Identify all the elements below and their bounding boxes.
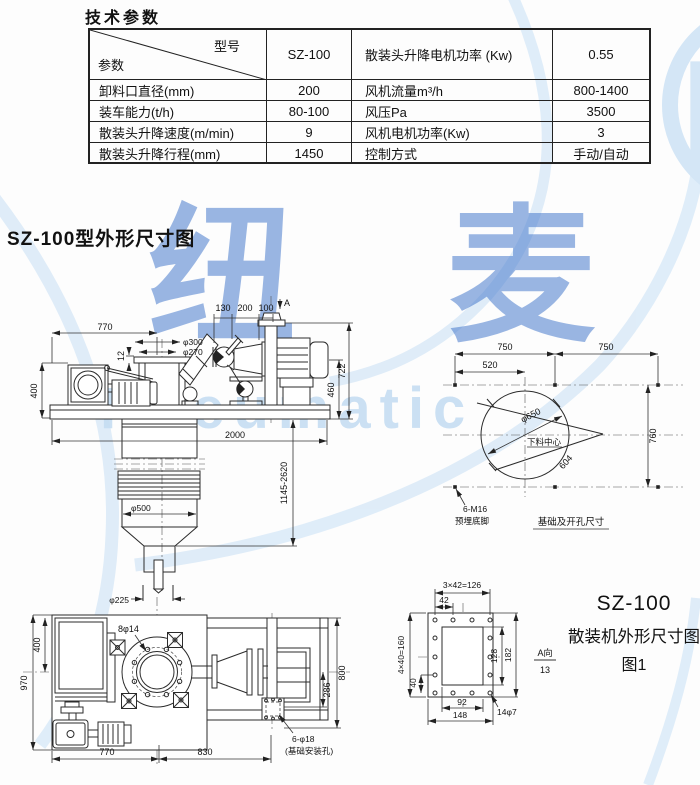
page-title: 技术参数	[85, 4, 161, 28]
dim-12: 12	[116, 351, 126, 361]
parameters-table: 型号 参数 SZ-100 散装头升降电机功率 (Kw) 0.55 卸料口直径(m…	[88, 28, 651, 164]
param-cell: 装车能力(t/h)	[90, 101, 267, 122]
figure-caption: SZ-100 散装机外形尺寸图 图1	[560, 592, 700, 675]
dim-40: 40	[408, 678, 418, 688]
dim-hole-pitch-top: 3×42=126	[443, 580, 482, 590]
figure-model: SZ-100	[560, 592, 700, 616]
value-cell: 3500	[553, 101, 649, 122]
header-value: 0.55	[553, 30, 649, 80]
dim-100: 100	[258, 303, 273, 313]
value-cell: 手动/自动	[553, 143, 649, 164]
dim-92: 92	[457, 697, 467, 707]
dim-182: 182	[503, 648, 513, 662]
anchor-spec-line1: 6-M16	[463, 504, 487, 514]
value-cell: 3	[553, 122, 649, 143]
figure-name: 散装机外形尺寸图	[560, 623, 700, 647]
foundation-center-lines	[443, 377, 683, 497]
param-cell: 散装头升降行程(mm)	[90, 143, 267, 164]
document-page: P 纽 麦 Pneumatic 技术参数 型号 参数 SZ-100 散装头升降电…	[0, 0, 700, 785]
anchor-hole-label2: (基础安装孔)	[285, 746, 333, 756]
dim-148: 148	[453, 710, 467, 720]
value-cell: 800-1400	[553, 80, 649, 101]
dim-286: 286	[322, 682, 332, 697]
figure-number: 图1	[560, 651, 700, 675]
anchor-hole-label1: 6-φ18	[292, 734, 315, 744]
dim-phi650: φ650	[519, 406, 542, 424]
dim-520: 520	[482, 360, 497, 370]
dim-hole-pitch-left: 4×40=160	[396, 636, 406, 675]
dim-200: 200	[237, 303, 252, 313]
table-corner-cell: 型号 参数	[90, 30, 267, 80]
watermark-logo-p: P	[670, 10, 700, 201]
param-cell: 风机电机功率(Kw)	[352, 122, 553, 143]
dim-400: 400	[29, 383, 39, 398]
param-cell: 风机流量m³/h	[352, 80, 553, 101]
dim-42: 42	[439, 595, 449, 605]
param-cell: 风压Pa	[352, 101, 553, 122]
anchor-spec-line2: 预埋底脚	[455, 516, 489, 526]
dim-770: 770	[97, 322, 112, 332]
corner-bottom-label: 参数	[98, 55, 124, 74]
dim-phi225: φ225	[109, 595, 129, 605]
dim-770-plan: 770	[99, 747, 114, 757]
dim-970: 970	[19, 675, 29, 690]
discharge-center-label: 下料中心	[527, 437, 562, 447]
header-param: 散装头升降电机功率 (Kw)	[352, 30, 553, 80]
dim-800: 800	[337, 665, 347, 680]
view-scale-label: 13	[540, 665, 550, 675]
value-cell: 1450	[267, 143, 352, 164]
logo-letter: P	[680, 28, 700, 201]
dim-130: 130	[215, 303, 230, 313]
anchor-points	[453, 383, 660, 489]
flange-outline	[428, 613, 493, 697]
dim-phi300: φ300	[183, 337, 203, 347]
dim-604: 604	[557, 453, 574, 471]
value-cell: 200	[267, 80, 352, 101]
value-cell: 80-100	[267, 101, 352, 122]
value-cell: 9	[267, 122, 352, 143]
foundation-drawing: 750 750 520 φ650 下料中心 604 760 6-M16 预埋底脚…	[415, 335, 700, 570]
plan-view-drawing: φ225 970 400 800 286 770 830 8φ14 6-φ18 …	[15, 585, 410, 785]
view-a-label: A	[284, 298, 290, 308]
section-title: SZ-100型外形尺寸图	[7, 224, 195, 251]
dim-2000: 2000	[225, 430, 245, 440]
param-cell: 卸料口直径(mm)	[90, 80, 267, 101]
dim-128: 128	[489, 649, 499, 663]
dim-phi270: φ270	[183, 347, 203, 357]
dim-750-right: 750	[598, 342, 613, 352]
view-direction-label: A向	[537, 647, 552, 658]
dim-phi500: φ500	[131, 503, 151, 513]
foundation-dimensions	[455, 354, 658, 505]
dim-830: 830	[197, 747, 212, 757]
param-cell: 散装头升降速度(m/min)	[90, 122, 267, 143]
side-view-drawing: 130 200 100 A 770 12 φ300 φ270 400 460 7…	[28, 293, 378, 610]
header-model: SZ-100	[267, 30, 352, 80]
dim-722: 722	[337, 363, 347, 378]
dim-750-left: 750	[497, 342, 512, 352]
dim-400-plan: 400	[32, 637, 42, 652]
dim-460: 460	[326, 382, 336, 397]
foundation-caption: 基础及开孔尺寸	[538, 516, 605, 528]
dim-760: 760	[648, 428, 658, 443]
dim-stroke-range: 1145-2620	[279, 462, 289, 504]
hole-spec-label: 14φ7	[497, 707, 517, 717]
flange-detail-drawing: 3×42=126 42 4×40=160 40 128 182 92 148 1…	[390, 575, 565, 735]
corner-top-label: 型号	[214, 36, 240, 55]
param-cell: 控制方式	[352, 143, 553, 164]
bolt-count-label: 8φ14	[118, 624, 139, 634]
